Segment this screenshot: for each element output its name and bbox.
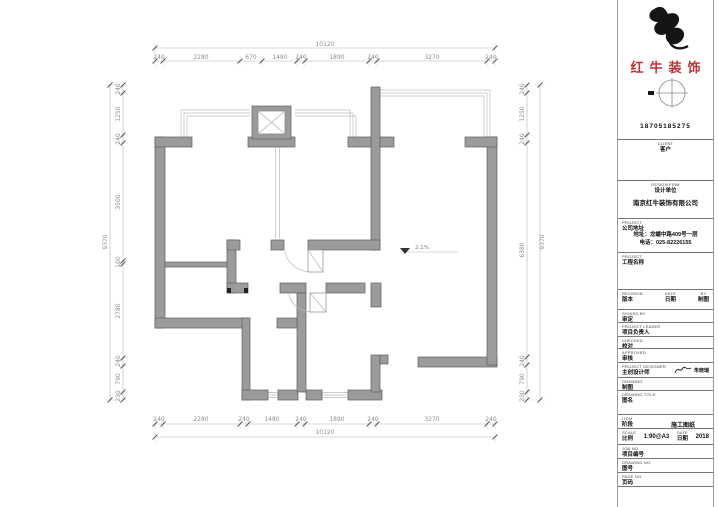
dim-label: 1480 xyxy=(264,416,279,423)
item-section: ITEM 阶段 施工图纸 xyxy=(618,414,713,428)
dim-label: 240 xyxy=(295,54,307,61)
drawing-title-label-zh: 图名 xyxy=(622,398,709,405)
signed-by-section: SIGNED BY 审定 xyxy=(618,309,713,322)
north-compass-icon xyxy=(618,74,714,116)
dim-label: 3500 xyxy=(115,194,122,209)
approved-section: APPROVED 审核 xyxy=(618,348,713,362)
redbull-logo-icon xyxy=(636,4,696,56)
shaft xyxy=(248,106,295,147)
dim-label: 240 xyxy=(115,83,122,95)
dim-label: 230 xyxy=(519,390,526,402)
drawing-no-section: DRAWING NO. 图号 xyxy=(618,458,713,472)
project-name-label-zh: 工程名称 xyxy=(622,260,709,267)
dim-label: 240 xyxy=(485,54,497,61)
rev-date-label-zh: 日期 xyxy=(665,297,676,304)
dim-label: 1250 xyxy=(519,106,526,121)
date-label-zh: 日期 xyxy=(677,436,688,443)
dim-label: 10120 xyxy=(315,429,334,436)
title-block: 红牛装饰 18705185275 CLIENT 客户 DESIGN FIRM 设… xyxy=(617,0,714,507)
company-tel: 电话：025-82226155 xyxy=(622,240,709,248)
walls xyxy=(155,87,497,400)
dim-label: 240 xyxy=(367,54,379,61)
dim-label: 1890 xyxy=(329,54,344,61)
scale-value: 1:90@A3 xyxy=(644,434,670,440)
dim-label: 1890 xyxy=(329,416,344,423)
address-section: PROJECT 公司地址 地址：龙蟠中路409号一层 电话：025-822261… xyxy=(618,218,713,252)
dim-label: 240 xyxy=(238,416,250,423)
revision-label-zh: 版本 xyxy=(622,297,643,304)
job-no-section: JOB NO. 项目编号 xyxy=(618,444,713,458)
dim-label: 240 xyxy=(295,416,307,423)
dim-label: 6380 xyxy=(519,242,526,257)
dim-label: 790 xyxy=(519,373,526,385)
designer-signature-icon xyxy=(674,365,692,375)
date-value: 2018 xyxy=(696,434,709,440)
checked-section: CHECKED 校对 xyxy=(618,336,713,348)
scale-label-zh: 比例 xyxy=(622,436,636,443)
revision-row: REVISION 版本 DATE 日期 BY 制图 xyxy=(618,289,713,309)
dim-label: 240 xyxy=(115,133,122,145)
dim-label: 240 xyxy=(115,355,122,367)
client-section: CLIENT 客户 xyxy=(618,139,713,180)
drawing-title-section: DRAWING TITLE 图名 xyxy=(618,390,713,414)
designer-label-zh: 主创设计师 xyxy=(622,370,666,377)
client-label-zh: 客户 xyxy=(622,147,709,154)
dim-label: 100 xyxy=(115,256,122,268)
dim-label: 2280 xyxy=(193,54,208,61)
dim-label: 230 xyxy=(115,390,122,402)
project-leader-section: PROJECT LEADER 项目负责人 xyxy=(618,322,713,336)
dim-label: 9370 xyxy=(539,234,546,249)
floor-plan-svg: 10120 240 2280 670 1480 240 1890 240 327… xyxy=(0,0,618,507)
design-firm-label-zh: 设计单位 xyxy=(622,188,709,195)
dim-label: 240 xyxy=(485,416,497,423)
dim-label: 670 xyxy=(245,54,257,61)
designer-section: PROJECT DESIGNER 主创设计师 朱晓瑞 xyxy=(618,362,713,377)
rev-by-label-zh: 制图 xyxy=(698,297,709,304)
scale-date-section: SCALE 比例 1:90@A3 DATE 日期 2018 xyxy=(618,428,713,444)
dim-label: 240 xyxy=(153,416,165,423)
dim-label: 2280 xyxy=(193,416,208,423)
level-marker: 2.1% xyxy=(400,245,458,254)
dim-label: 240 xyxy=(153,54,165,61)
dim-label: 240 xyxy=(519,83,526,95)
drawing-sheet: 10120 240 2280 670 1480 240 1890 240 327… xyxy=(0,0,718,507)
company-name: 南京红牛装饰有限公司 xyxy=(622,197,709,207)
page-no-label-zh: 页码 xyxy=(622,480,709,487)
dim-label: 9370 xyxy=(102,234,109,249)
dim-label: 240 xyxy=(367,416,379,423)
dim-label: 240 xyxy=(519,133,526,145)
project-name-section: PROJECT 工程名称 xyxy=(618,252,713,289)
dim-label: 790 xyxy=(115,373,122,385)
drawing-section: DRAWING 制图 xyxy=(618,377,713,390)
dim-label: 3270 xyxy=(424,416,439,423)
dim-label: 240 xyxy=(519,355,526,367)
design-firm-section: DESIGN FIRM 设计单位 南京红牛装饰有限公司 xyxy=(618,180,713,218)
dim-label: 2780 xyxy=(115,303,122,318)
designer-signature-name: 朱晓瑞 xyxy=(694,367,709,374)
dimension-labels: 10120 240 2280 670 1480 240 1890 240 327… xyxy=(102,41,546,436)
level-marker-label: 2.1% xyxy=(415,245,429,251)
dim-label: 1250 xyxy=(115,106,122,121)
dim-label: 1480 xyxy=(272,54,287,61)
dim-label: 3270 xyxy=(424,54,439,61)
page-no-section: PAGE NO. 页码 xyxy=(618,472,713,487)
dim-label: 10120 xyxy=(315,41,334,48)
brand-phone: 18705185275 xyxy=(618,123,713,130)
